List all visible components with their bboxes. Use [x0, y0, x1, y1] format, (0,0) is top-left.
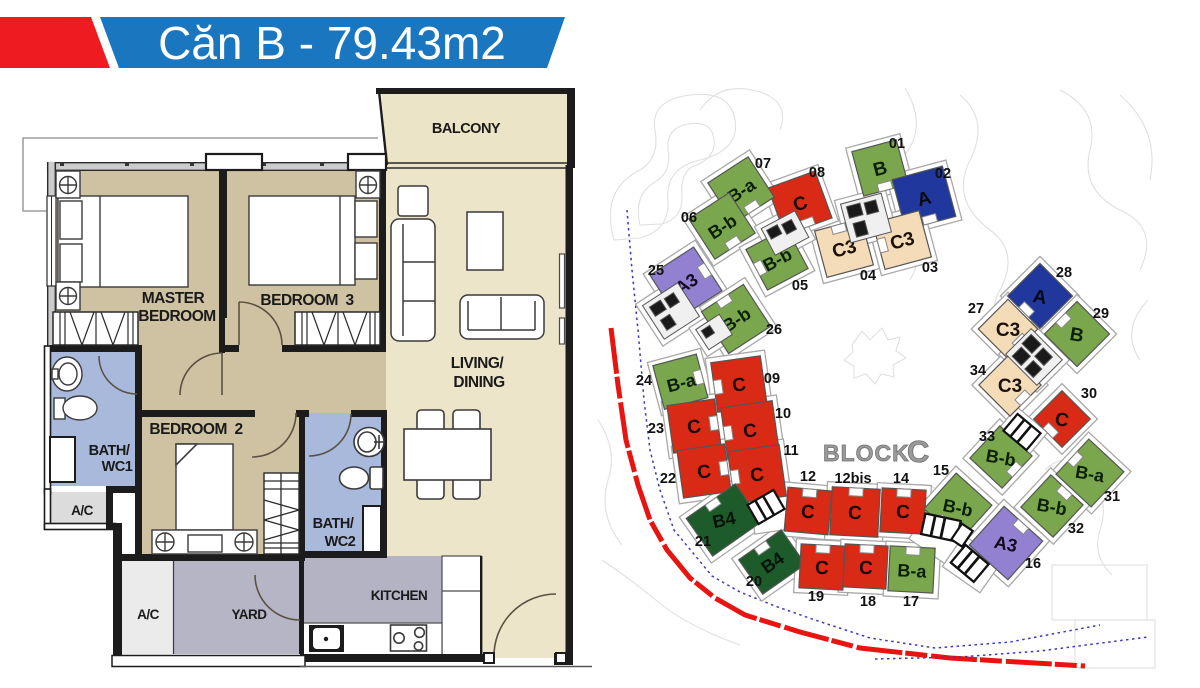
- svg-text:26: 26: [766, 322, 782, 338]
- svg-text:C: C: [859, 558, 874, 580]
- svg-text:24: 24: [636, 373, 652, 389]
- svg-text:04: 04: [860, 268, 876, 284]
- svg-text:10: 10: [775, 406, 791, 422]
- svg-text:BEDROOM: BEDROOM: [138, 308, 215, 325]
- svg-text:28: 28: [1056, 265, 1072, 281]
- svg-text:22: 22: [660, 471, 676, 487]
- svg-text:34: 34: [970, 363, 986, 379]
- svg-text:C3: C3: [998, 376, 1022, 397]
- svg-text:06: 06: [681, 210, 697, 226]
- svg-text:WC2: WC2: [325, 534, 356, 550]
- svg-text:14: 14: [893, 471, 909, 487]
- svg-text:A/C: A/C: [71, 503, 94, 518]
- svg-text:DINING: DINING: [453, 374, 505, 391]
- svg-text:A/C: A/C: [137, 607, 160, 622]
- svg-text:C: C: [815, 558, 830, 580]
- svg-text:08: 08: [809, 165, 825, 181]
- svg-text:12bis: 12bis: [834, 471, 871, 487]
- svg-text:09: 09: [764, 371, 780, 387]
- svg-text:BATH/: BATH/: [313, 516, 354, 532]
- svg-text:33: 33: [979, 429, 995, 445]
- svg-text:C: C: [896, 502, 911, 524]
- svg-text:WC1: WC1: [102, 459, 133, 475]
- svg-text:17: 17: [903, 594, 919, 610]
- svg-text:21: 21: [695, 534, 711, 550]
- svg-text:BLOCK: BLOCK: [823, 440, 910, 466]
- svg-text:LIVING/: LIVING/: [451, 355, 505, 372]
- svg-text:02: 02: [935, 166, 951, 182]
- svg-text:20: 20: [746, 574, 762, 590]
- svg-text:BEDROOM 2: BEDROOM 2: [149, 421, 242, 438]
- svg-text:C: C: [800, 501, 816, 523]
- svg-text:BEDROOM 3: BEDROOM 3: [260, 292, 354, 309]
- svg-text:01: 01: [889, 136, 905, 152]
- svg-text:05: 05: [792, 278, 808, 294]
- svg-text:15: 15: [933, 463, 949, 479]
- svg-text:KITCHEN: KITCHEN: [371, 588, 428, 603]
- svg-text:07: 07: [755, 156, 771, 172]
- svg-text:C3: C3: [996, 320, 1020, 341]
- svg-text:19: 19: [808, 589, 824, 605]
- svg-text:16: 16: [1025, 556, 1041, 572]
- svg-text:03: 03: [922, 260, 938, 276]
- svg-text:27: 27: [968, 301, 984, 317]
- svg-text:18: 18: [860, 594, 876, 610]
- svg-text:C: C: [907, 434, 929, 469]
- svg-text:23: 23: [648, 421, 664, 437]
- svg-text:Căn B - 79.43m2: Căn B - 79.43m2: [158, 17, 506, 69]
- svg-text:11: 11: [783, 443, 798, 459]
- svg-text:25: 25: [648, 263, 664, 279]
- svg-text:C: C: [848, 503, 863, 525]
- svg-text:29: 29: [1093, 306, 1109, 322]
- svg-text:12: 12: [800, 469, 816, 485]
- svg-text:MASTER: MASTER: [142, 290, 205, 307]
- svg-text:BATH/: BATH/: [89, 443, 130, 459]
- svg-text:31: 31: [1104, 489, 1120, 505]
- svg-text:B-a: B-a: [897, 560, 928, 582]
- svg-text:32: 32: [1068, 521, 1084, 537]
- svg-text:30: 30: [1081, 386, 1097, 402]
- svg-text:YARD: YARD: [231, 607, 267, 622]
- svg-text:BALCONY: BALCONY: [432, 121, 501, 137]
